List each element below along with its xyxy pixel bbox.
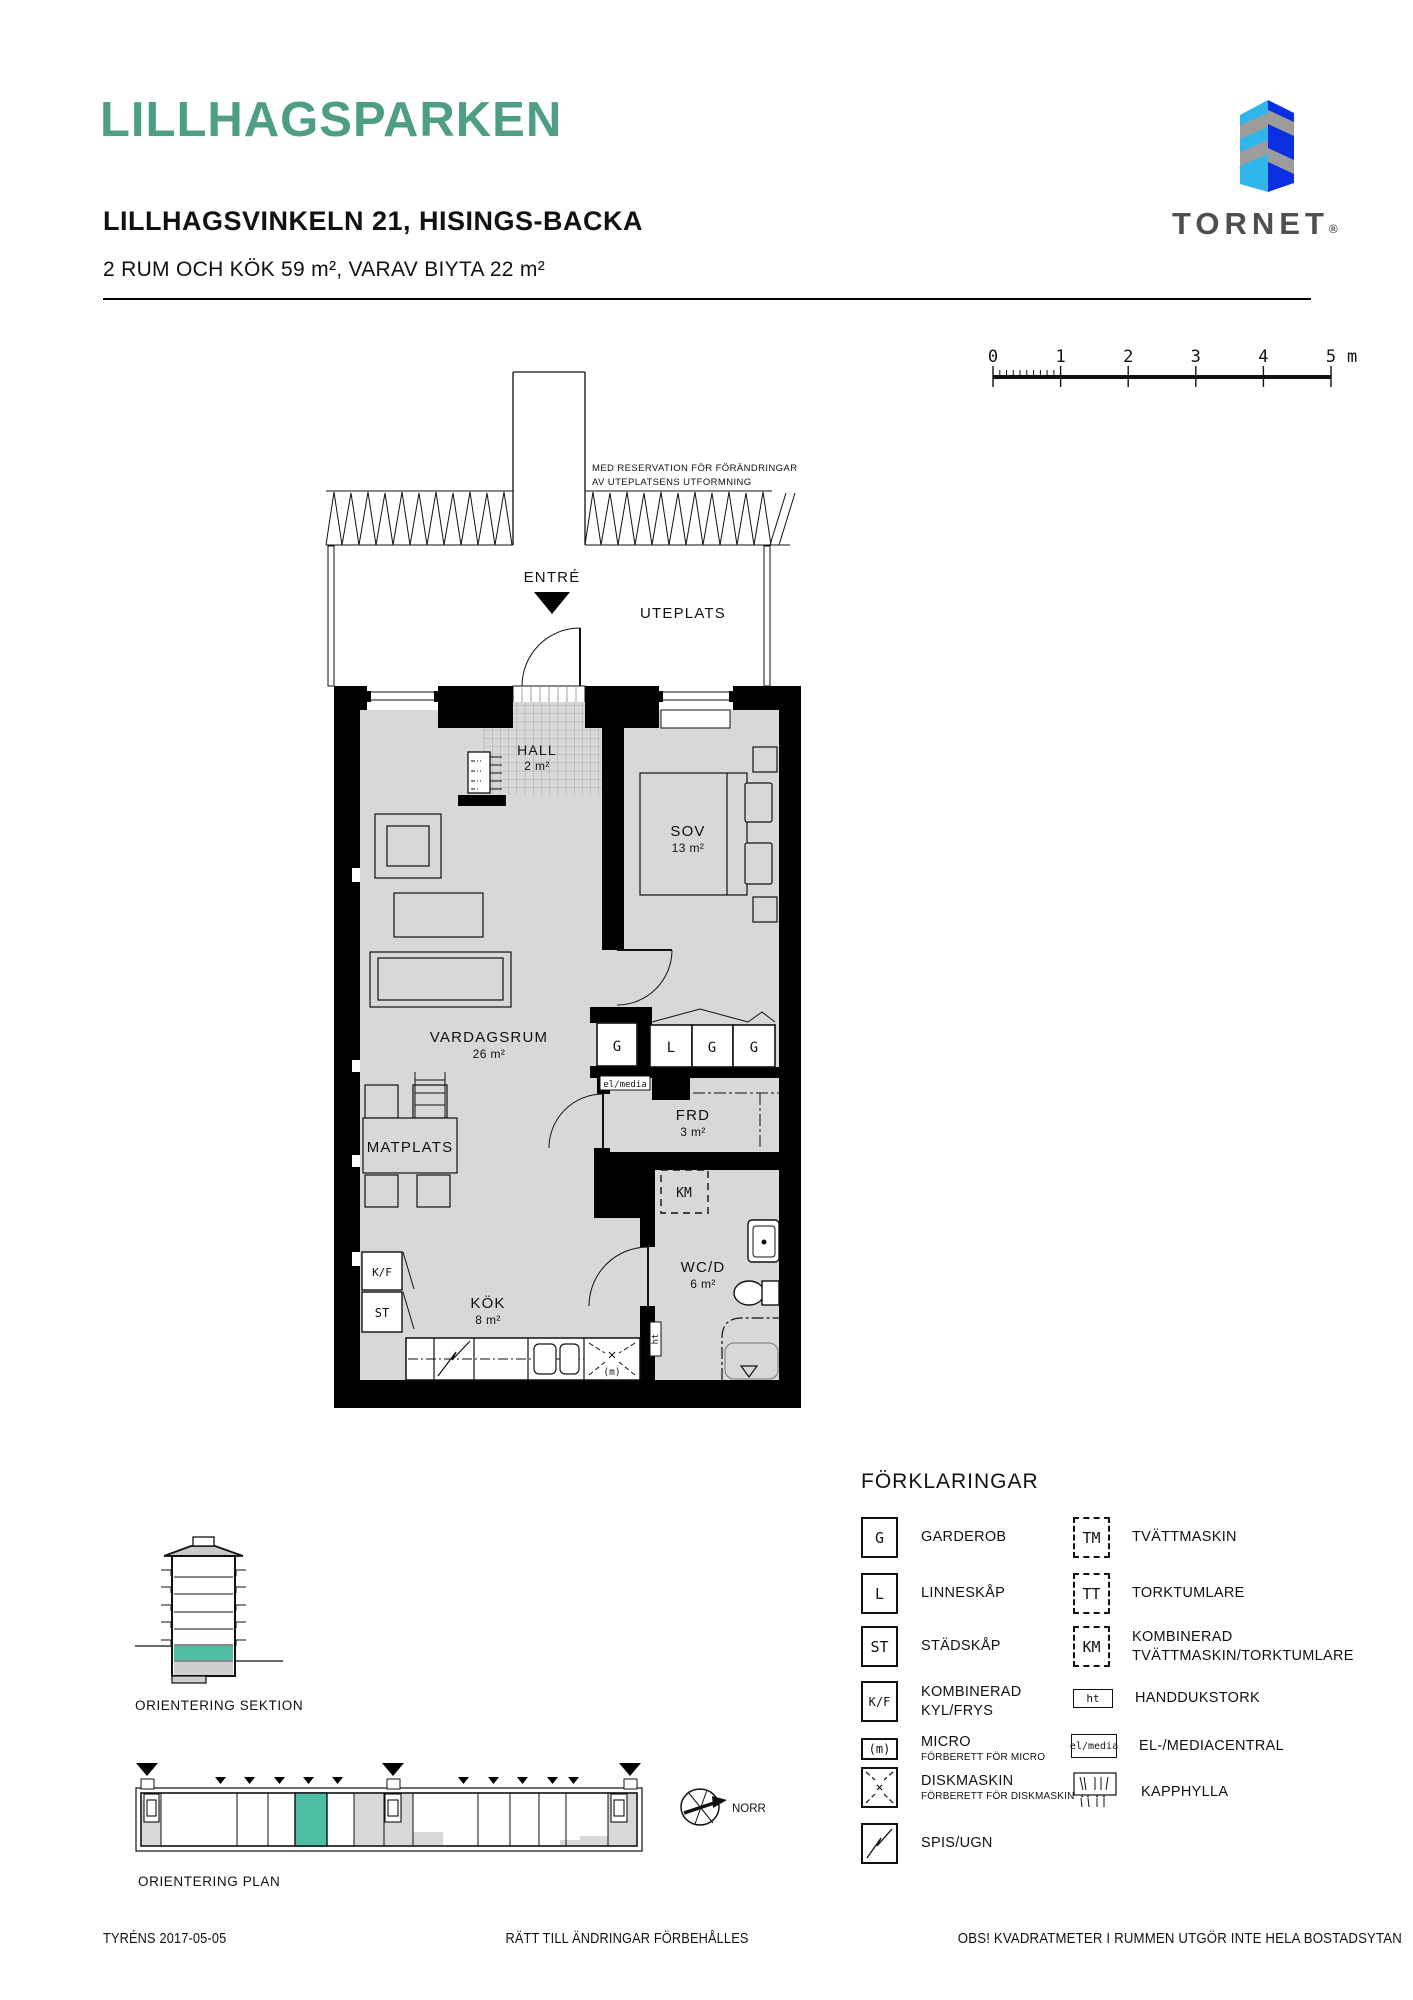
- km-label: KM: [676, 1186, 692, 1201]
- micro-label: (m): [603, 1367, 620, 1378]
- legend-sublabel: FÖRBERETT FÖR MICRO: [921, 1752, 1045, 1765]
- footer-disclaimer: RÄTT TILL ÄNDRINGAR FÖRBEHÅLLES: [432, 1930, 823, 1947]
- kapphylla-glyph: [1073, 1772, 1119, 1808]
- tornet-logo-icon: [1240, 100, 1294, 192]
- legend-item-kylfrys: K/F KOMBINERADKYL/FRYS: [861, 1681, 1022, 1722]
- uteplats-note-line1: MED RESERVATION FÖR FÖRÄNDRINGAR: [592, 463, 797, 474]
- legend-label: STÄDSKÅP: [921, 1637, 1001, 1655]
- legend-item-diskmaskin: DISKMASKINFÖRBERETT FÖR DISKMASKIN: [861, 1767, 1075, 1808]
- legend-item-kapphylla: KAPPHYLLA: [1073, 1772, 1228, 1813]
- frd-area: 3 m²: [680, 1125, 706, 1139]
- orientation-plan: ORIENTERING PLAN: [136, 1763, 642, 1889]
- floorplan-sheet: { "header": { "title": "LILLHAGSPARKEN",…: [0, 0, 1413, 2000]
- legend-label: TVÄTTMASKIN/TORKTUMLARE: [1132, 1647, 1354, 1665]
- entrance-triangles: [136, 1763, 641, 1789]
- wardrobe-g-label: G: [750, 1040, 758, 1056]
- legend-item-stadskap: ST STÄDSKÅP: [861, 1626, 1001, 1667]
- legend-label: KOMBINERAD: [921, 1683, 1022, 1701]
- scale-tick-5: 5: [1326, 347, 1336, 367]
- legend-item-spisugn: SPIS/UGN: [861, 1823, 993, 1864]
- hall-wall-stub: [458, 795, 506, 806]
- legend-label: TVÄTTMASKIN: [1132, 1528, 1237, 1546]
- entre-label: ENTRÉ: [524, 569, 581, 586]
- sink-basin: [534, 1344, 556, 1374]
- legend-label: KAPPHYLLA: [1141, 1783, 1228, 1801]
- el-media-label: el/media: [603, 1080, 646, 1090]
- entre-arrow-icon: [534, 592, 570, 614]
- toilet: [734, 1281, 764, 1305]
- kylfrys-symbol-icon: K/F: [861, 1681, 898, 1722]
- scale-unit: m: [1347, 347, 1357, 367]
- legend-item-kombimaskin: KM KOMBINERADTVÄTTMASKIN/TORKTUMLARE: [1073, 1626, 1354, 1667]
- legend-label: HANDDUKSTORK: [1135, 1689, 1260, 1707]
- kok-area: 8 m²: [475, 1313, 501, 1327]
- legend-label: MICRO: [921, 1733, 1045, 1751]
- el-media-central: el/media: [600, 1076, 650, 1090]
- legend-label: TORKTUMLARE: [1132, 1584, 1245, 1602]
- scale-tick-4: 4: [1258, 347, 1268, 367]
- highlighted-unit: [295, 1793, 327, 1846]
- km-symbol-icon: KM: [1073, 1626, 1110, 1667]
- vardagsrum-label: VARDAGSRUM: [430, 1029, 548, 1046]
- north-label: NORR: [732, 1803, 766, 1815]
- legend-item-handdukstork: ht HANDDUKSTORK: [1073, 1689, 1260, 1708]
- scale-tick-1: 1: [1055, 347, 1065, 367]
- footer-date: TYRÉNS 2017-05-05: [103, 1930, 226, 1947]
- legend-label: KOMBINERAD: [1132, 1628, 1354, 1646]
- wardrobe-g-label: G: [708, 1040, 716, 1056]
- legend-label: LINNESKÅP: [921, 1584, 1005, 1602]
- window-bedroom: [659, 686, 733, 728]
- bed-pillow: [745, 843, 772, 884]
- legend-label: SPIS/UGN: [921, 1834, 993, 1852]
- orientation-plan-label: ORIENTERING PLAN: [138, 1874, 280, 1889]
- kok-label: KÖK: [470, 1294, 505, 1312]
- legend-label: KYL/FRYS: [921, 1702, 1022, 1720]
- legend-item-torktumlare: TT TORKTUMLARE: [1073, 1573, 1245, 1614]
- micro-symbol-icon: (m): [861, 1738, 898, 1760]
- ht-label: ht: [651, 1334, 661, 1345]
- scale-tick-2: 2: [1123, 347, 1133, 367]
- uteplats-note-line2: AV UTEPLATSENS UTFORMNING: [592, 477, 752, 488]
- scale-tick-3: 3: [1191, 347, 1201, 367]
- sov-label: SOV: [670, 823, 705, 840]
- legend-sublabel: FÖRBERETT FÖR DISKMASKIN: [921, 1791, 1075, 1804]
- fridge-freezer-label: K/F: [372, 1266, 392, 1279]
- legend-label: DISKMASKIN: [921, 1772, 1075, 1790]
- matplats-label: MATPLATS: [367, 1139, 454, 1156]
- diskmaskin-symbol-icon: [861, 1767, 898, 1808]
- garderob-symbol-icon: G: [861, 1517, 898, 1558]
- window-living: [367, 686, 438, 710]
- stadskap-symbol-icon: ST: [861, 1626, 898, 1667]
- wcd-area: 6 m²: [690, 1277, 716, 1291]
- handdukstork-symbol-icon: ht: [1073, 1689, 1113, 1708]
- entrance-walkway: [513, 372, 585, 545]
- highlighted-floor: [174, 1646, 233, 1660]
- legend-item-garderob: G GARDEROB: [861, 1517, 1006, 1558]
- vardagsrum-area: 26 m²: [473, 1047, 506, 1061]
- torktumlare-symbol-icon: TT: [1073, 1573, 1110, 1614]
- elmedia-symbol-icon: el/media: [1071, 1734, 1117, 1758]
- legend-item-micro: (m) MICROFÖRBERETT FÖR MICRO: [861, 1733, 1045, 1765]
- orientation-section: ORIENTERING SEKTION: [135, 1537, 303, 1713]
- legend-label: GARDEROB: [921, 1528, 1006, 1546]
- spisugn-glyph: [863, 1825, 896, 1862]
- spisugn-symbol-icon: [861, 1823, 898, 1864]
- legend-item-linneskap: L LINNESKÅP: [861, 1573, 1005, 1614]
- linneskap-symbol-icon: L: [861, 1573, 898, 1614]
- cleaning-closet-label: ST: [375, 1306, 389, 1320]
- scale-bar: 0 1 2 3 4 5 m: [988, 347, 1357, 387]
- footer-note: OBS! KVADRATMETER I RUMMEN UTGÖR INTE HE…: [958, 1930, 1345, 1947]
- planting-hatch: [326, 491, 795, 545]
- north-compass-icon: [681, 1789, 727, 1825]
- wardrobe-g-label: G: [613, 1039, 621, 1055]
- uteplats-label: UTEPLATS: [640, 605, 726, 622]
- floor-plan: MED RESERVATION FÖR FÖRÄNDRINGAR AV UTEP…: [326, 372, 801, 1408]
- entry-door: [522, 628, 580, 686]
- sov-area: 13 m²: [672, 841, 705, 855]
- linen-closet-label: L: [667, 1040, 675, 1056]
- wcd-label: WC/D: [681, 1259, 726, 1276]
- kapphylla-symbol-icon: [1073, 1772, 1119, 1813]
- tvattmaskin-symbol-icon: TM: [1073, 1517, 1110, 1558]
- hall-label: HALL: [517, 742, 557, 758]
- diskmaskin-glyph: [863, 1769, 896, 1806]
- sink-basin: [560, 1344, 579, 1374]
- legend-label: EL-/MEDIACENTRAL: [1139, 1737, 1284, 1755]
- frd-label: FRD: [676, 1107, 710, 1124]
- orientation-section-label: ORIENTERING SEKTION: [135, 1698, 303, 1713]
- legend-item-tvattmaskin: TM TVÄTTMASKIN: [1073, 1517, 1237, 1558]
- bed-pillow: [745, 783, 772, 822]
- legend-item-elmedia: el/media EL-/MEDIACENTRAL: [1071, 1734, 1284, 1758]
- scale-tick-0: 0: [988, 347, 998, 367]
- legend-heading: FÖRKLARINGAR: [861, 1470, 1039, 1494]
- hall-area: 2 m²: [524, 759, 550, 773]
